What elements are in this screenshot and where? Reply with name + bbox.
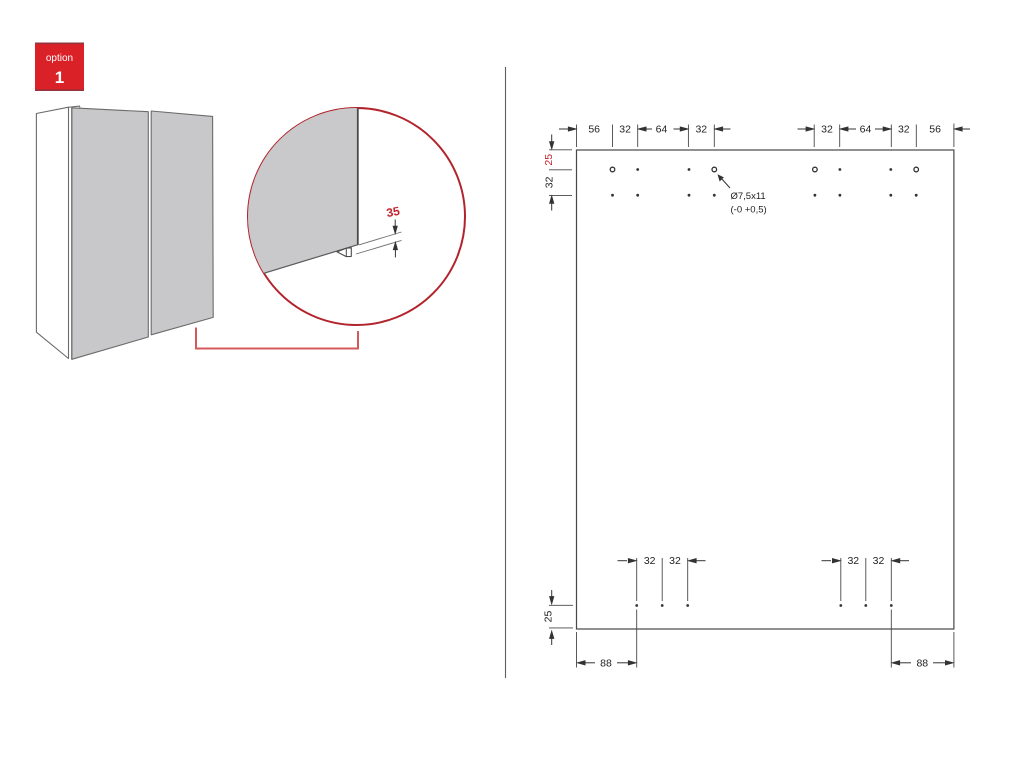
svg-text:32: 32: [644, 555, 656, 567]
svg-text:32: 32: [544, 176, 556, 188]
svg-text:1: 1: [55, 68, 64, 87]
svg-text:32: 32: [847, 555, 859, 567]
svg-text:(-0 +0,5): (-0 +0,5): [731, 205, 767, 216]
svg-text:25: 25: [543, 154, 555, 166]
svg-text:option: option: [46, 53, 73, 64]
svg-text:35: 35: [385, 204, 401, 220]
svg-text:Ø7,5x11: Ø7,5x11: [731, 191, 766, 202]
svg-text:64: 64: [860, 123, 872, 135]
svg-text:25: 25: [543, 611, 555, 623]
svg-text:32: 32: [898, 123, 910, 135]
svg-text:32: 32: [873, 555, 885, 567]
svg-text:32: 32: [669, 555, 681, 567]
svg-text:56: 56: [929, 123, 941, 135]
svg-text:32: 32: [821, 123, 833, 135]
svg-text:88: 88: [600, 657, 612, 669]
svg-text:32: 32: [619, 123, 631, 135]
svg-text:32: 32: [695, 123, 707, 135]
svg-text:56: 56: [588, 123, 600, 135]
svg-text:88: 88: [916, 657, 928, 669]
svg-text:64: 64: [656, 123, 668, 135]
